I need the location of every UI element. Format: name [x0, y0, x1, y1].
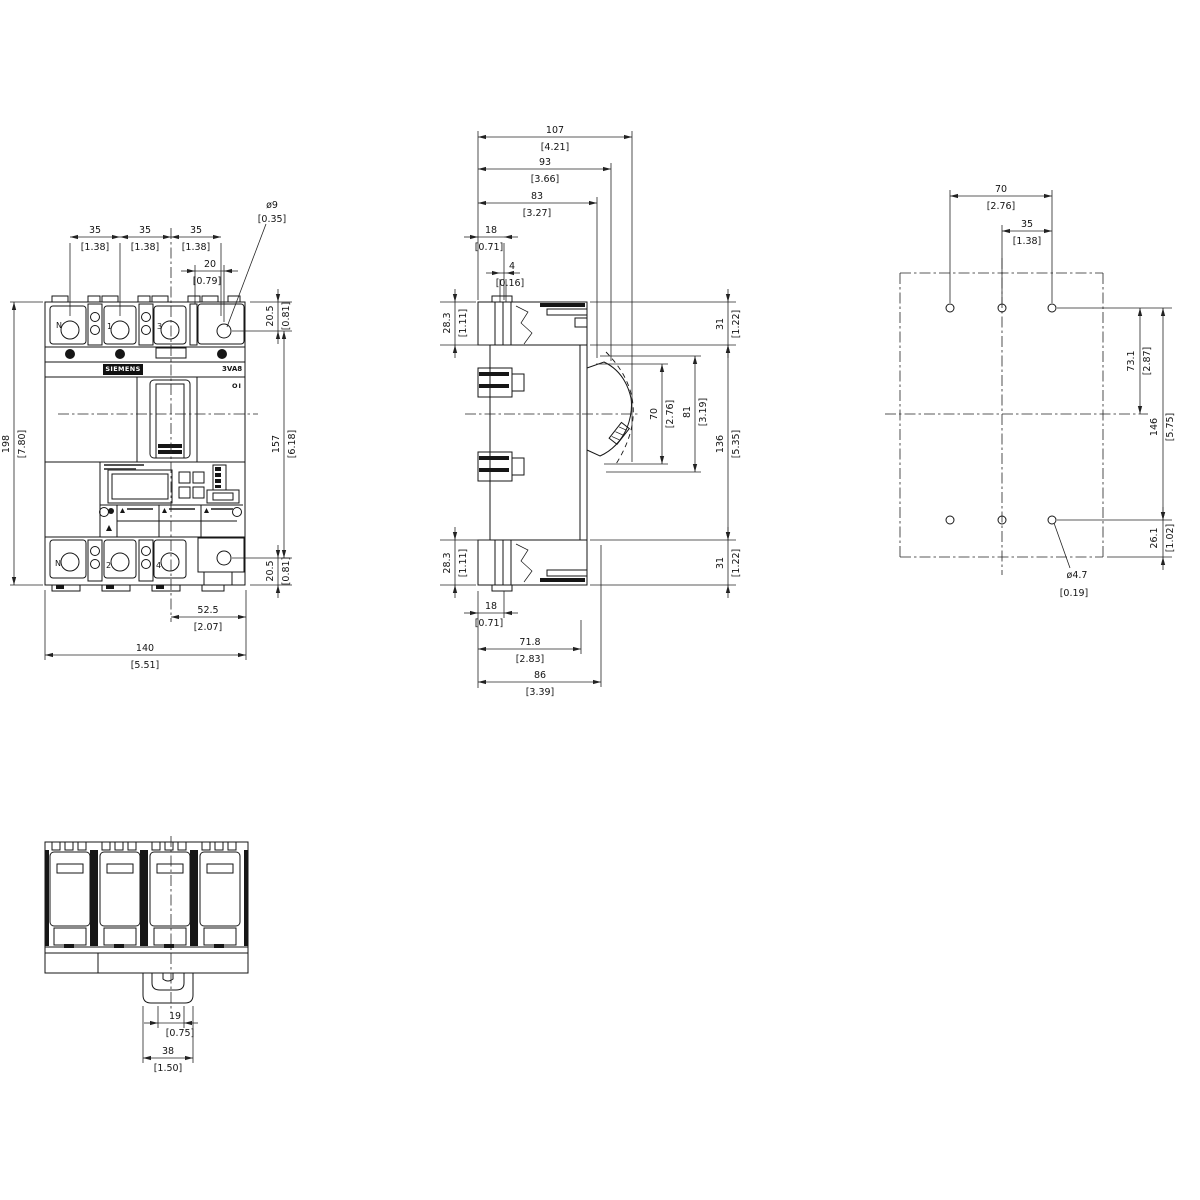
warning-triangle-icon: [162, 508, 167, 513]
warning-triangle-icon: [106, 525, 112, 531]
drill-hole-leader-line: [1054, 523, 1070, 568]
dim-side-base-depth-mm: 71.8: [495, 638, 565, 648]
warning-triangle-icon: [204, 508, 209, 513]
dim-drill-hole-half-span-mm: 35: [992, 220, 1062, 230]
dim-drill-row-to-center-in: [2.87]: [1143, 326, 1153, 396]
dimension-drawing: N 1 3 N 2 4 SIEMENS 3VA8 OI 35 [1.38] 35…: [0, 0, 1200, 1200]
dim-front-hole-dia-in: [0.35]: [237, 215, 307, 225]
terminal-label-1: 1: [107, 323, 112, 331]
etu-button: [193, 472, 204, 483]
dim-drill-hole-half-span-in: [1.38]: [992, 237, 1062, 247]
dim-side-terminal-depth-bottom-mm: 28.3: [443, 528, 453, 598]
dim-front-terminal-top-mm: 20.5: [266, 281, 276, 351]
drill-hole: [1048, 304, 1056, 312]
mounting-hole-top: [217, 324, 231, 338]
dim-side-cover-bottom-in: [1.22]: [732, 528, 742, 598]
dim-drill-row-span-in: [5.75]: [1166, 392, 1176, 462]
etu-button: [179, 487, 190, 498]
front-view: [45, 228, 258, 622]
dim-front-hole-offset-mm: 20: [175, 260, 245, 270]
dim-side-handle-cutout-mm: 70: [650, 379, 660, 449]
dim-drill-row-to-edge-in: [1.02]: [1166, 503, 1176, 573]
dim-drill-hole-span-mm: 70: [966, 185, 1036, 195]
side-top-terminal: [492, 296, 587, 345]
dim-front-center-to-edge-mm: 52.5: [173, 606, 243, 616]
dim-bottom-clip-width-mm: 38: [133, 1047, 203, 1057]
handle-travel-arc: [606, 352, 633, 464]
dim-side-rear-offset-top-mm: 18: [456, 226, 526, 236]
dim-side-rail-lip-mm: 4: [477, 262, 547, 272]
dim-front-height-total-in: [7.80]: [18, 409, 28, 479]
dim-side-cover-top-in: [1.22]: [732, 289, 742, 359]
dim-side-body-height-in: [5.35]: [732, 409, 742, 479]
dim-drill-hole-dia-mm: ø4.7: [1042, 571, 1112, 581]
dim-bottom-clip-width-in: [1.50]: [133, 1064, 203, 1074]
dim-front-height-terminals-mm: 157: [272, 409, 282, 479]
etu-display: [108, 470, 172, 503]
hole-leader-line: [227, 224, 266, 327]
dim-side-depth-handle-mm: 93: [510, 158, 580, 168]
dim-front-hole-offset-in: [0.79]: [172, 277, 242, 287]
dim-drill-hole-span-in: [2.76]: [966, 202, 1036, 212]
dim-side-handle-cutout-in: [2.76]: [666, 379, 676, 449]
dim-front-center-to-edge-in: [2.07]: [173, 623, 243, 633]
dim-front-width-total-in: [5.51]: [110, 661, 180, 671]
dim-side-cover-bottom-mm: 31: [716, 528, 726, 598]
front-trip-unit: [100, 462, 239, 537]
front-label-strip: [100, 505, 242, 537]
drill-hole: [946, 304, 954, 312]
dim-front-terminal-bottom-in: [0.81]: [282, 536, 292, 606]
dim-side-depth-escutcheon-mm: 83: [502, 192, 572, 202]
test-connector: [207, 490, 239, 503]
front-dimensions: [10, 224, 292, 660]
terminal-label-2: 2: [106, 562, 111, 570]
front-handle: [137, 377, 197, 462]
dim-bottom-clip-slot-mm: 19: [140, 1012, 210, 1022]
terminal-label-3: 3: [157, 323, 162, 331]
drill-hole: [946, 516, 954, 524]
dim-front-pole-pitch-3-mm: 35: [161, 226, 231, 236]
terminal-label-4: 4: [156, 562, 161, 570]
mounting-hole-bottom: [217, 551, 231, 565]
dim-side-depth-handle-in: [3.66]: [510, 175, 580, 185]
dim-side-escutcheon-height-mm: 81: [683, 377, 693, 447]
on-off-marking: OI: [232, 382, 242, 390]
side-bottom-terminal: [492, 540, 587, 591]
dim-drill-row-to-center-mm: 73.1: [1127, 326, 1137, 396]
dim-drill-row-span-mm: 146: [1150, 392, 1160, 462]
dim-side-depth-total-mm: 107: [520, 126, 590, 136]
etu-button: [193, 487, 204, 498]
dim-front-pole-pitch-3-in: [1.38]: [161, 243, 231, 253]
side-view: [465, 296, 640, 591]
dim-front-height-total-mm: 198: [2, 409, 12, 479]
toggle-handle-profile: [587, 362, 632, 456]
side-rear-lugs: [478, 368, 524, 481]
dim-front-terminal-bottom-mm: 20.5: [266, 536, 276, 606]
terminal-label-n-top: N: [56, 322, 62, 330]
dim-side-rear-offset-bottom-in: [0.71]: [454, 619, 524, 629]
front-top-terminals: [50, 304, 244, 345]
dim-side-body-height-mm: 136: [716, 409, 726, 479]
model-label: 3VA8: [222, 365, 242, 373]
bottom-view-modules: [45, 842, 248, 946]
dim-side-rear-offset-bottom-mm: 18: [456, 602, 526, 612]
brand-label: SIEMENS: [103, 364, 143, 375]
terminal-label-n-bottom: N: [55, 560, 61, 568]
din-rail-clip: [143, 973, 193, 1003]
dim-drill-row-to-edge-mm: 26.1: [1150, 503, 1160, 573]
dim-front-hole-dia-mm: ø9: [237, 201, 307, 211]
front-screw-row: [65, 348, 227, 359]
dim-side-depth-escutcheon-in: [3.27]: [502, 209, 572, 219]
dim-side-depth-total-in: [4.21]: [520, 143, 590, 153]
front-top-tabs: [52, 296, 240, 302]
warning-triangle-icon: [120, 508, 125, 513]
dim-drill-hole-dia-in: [0.19]: [1039, 589, 1109, 599]
dim-side-terminal-depth-bottom-in: [1.11]: [459, 528, 469, 598]
dim-side-rear-offset-top-in: [0.71]: [454, 243, 524, 253]
dim-side-terminal-depth-top-mm: 28.3: [443, 288, 453, 358]
dim-front-terminal-top-in: [0.81]: [282, 281, 292, 351]
dim-side-base-depth-in: [2.83]: [495, 655, 565, 665]
dim-front-width-total-mm: 140: [110, 644, 180, 654]
dim-side-rail-lip-in: [0.16]: [475, 279, 545, 289]
dim-side-escutcheon-height-in: [3.19]: [699, 377, 709, 447]
dim-side-cover-top-mm: 31: [716, 289, 726, 359]
dim-bottom-clip-slot-in: [0.75]: [145, 1029, 215, 1039]
drill-hole: [1048, 516, 1056, 524]
dim-side-front-depth-in: [3.39]: [505, 688, 575, 698]
etu-button: [179, 472, 190, 483]
handle-grip-mid-position: [609, 422, 629, 444]
dim-side-terminal-depth-top-in: [1.11]: [459, 288, 469, 358]
dim-front-height-terminals-in: [6.18]: [288, 409, 298, 479]
front-bottom-terminals: [50, 538, 244, 591]
dim-side-front-depth-mm: 86: [505, 671, 575, 681]
